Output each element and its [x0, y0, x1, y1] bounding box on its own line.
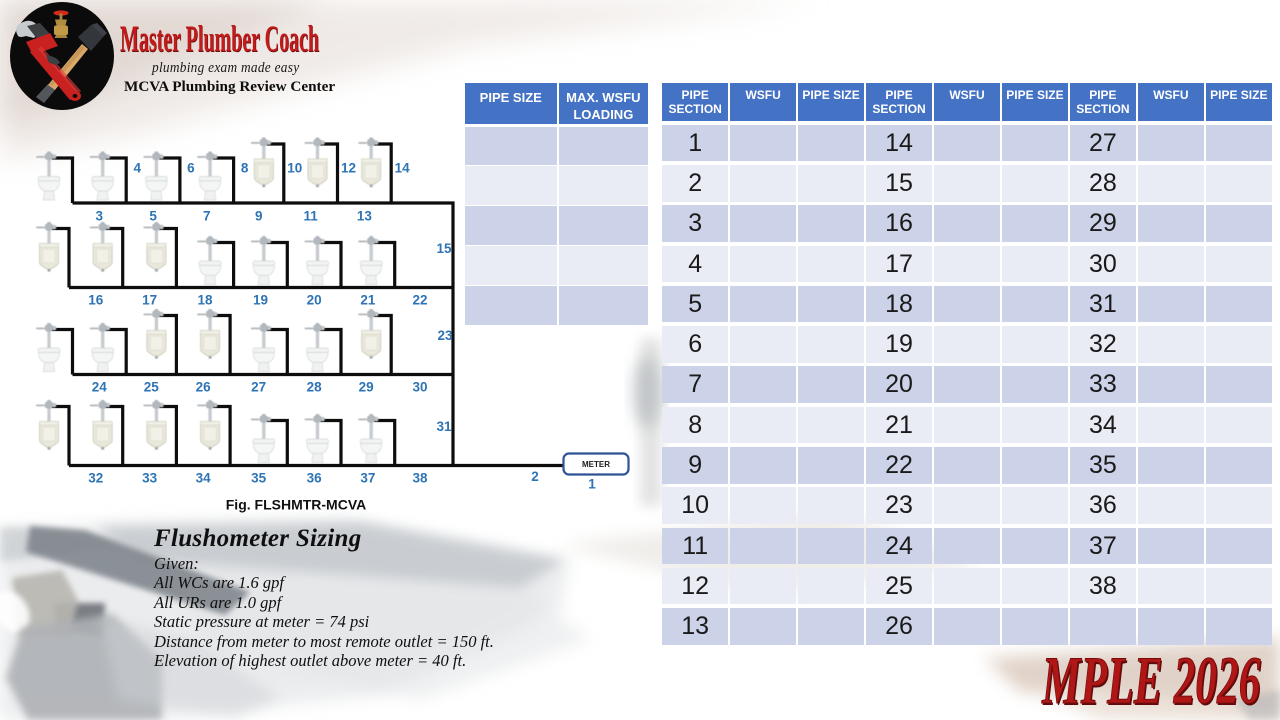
- svg-text:1: 1: [588, 477, 596, 492]
- svg-text:15: 15: [436, 241, 452, 256]
- svg-text:11: 11: [303, 209, 318, 224]
- svg-text:METER: METER: [582, 460, 610, 469]
- svg-text:30: 30: [412, 380, 427, 395]
- svg-text:3: 3: [96, 209, 104, 224]
- svg-text:6: 6: [187, 161, 195, 176]
- svg-text:28: 28: [307, 380, 323, 395]
- svg-text:35: 35: [251, 471, 267, 486]
- svg-text:25: 25: [144, 380, 160, 395]
- svg-text:Fig. FLSHMTR-MCVA: Fig. FLSHMTR-MCVA: [226, 497, 367, 513]
- svg-text:23: 23: [437, 328, 453, 343]
- svg-text:13: 13: [357, 209, 373, 224]
- svg-text:2: 2: [531, 469, 539, 484]
- svg-text:19: 19: [253, 293, 268, 308]
- svg-text:20: 20: [307, 293, 322, 308]
- svg-text:34: 34: [196, 471, 212, 486]
- svg-text:17: 17: [142, 293, 157, 308]
- svg-text:24: 24: [92, 380, 108, 395]
- svg-text:12: 12: [341, 161, 356, 176]
- svg-text:33: 33: [142, 471, 158, 486]
- svg-text:31: 31: [436, 419, 452, 434]
- svg-text:14: 14: [395, 161, 411, 176]
- svg-text:36: 36: [307, 471, 323, 486]
- svg-text:5: 5: [149, 209, 157, 224]
- svg-text:29: 29: [359, 380, 374, 395]
- svg-text:32: 32: [88, 471, 103, 486]
- svg-text:38: 38: [412, 471, 428, 486]
- svg-text:18: 18: [197, 293, 213, 308]
- svg-text:27: 27: [251, 380, 266, 395]
- svg-text:22: 22: [412, 293, 427, 308]
- svg-text:8: 8: [241, 161, 249, 176]
- svg-text:21: 21: [360, 293, 376, 308]
- svg-text:4: 4: [133, 161, 141, 176]
- svg-text:16: 16: [88, 293, 104, 308]
- svg-text:10: 10: [287, 161, 302, 176]
- svg-text:7: 7: [203, 209, 211, 224]
- svg-text:9: 9: [255, 209, 263, 224]
- svg-text:26: 26: [196, 380, 212, 395]
- svg-text:37: 37: [360, 471, 375, 486]
